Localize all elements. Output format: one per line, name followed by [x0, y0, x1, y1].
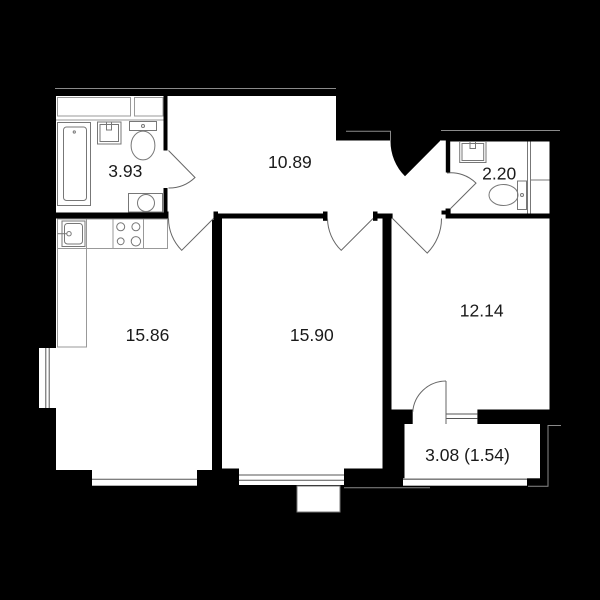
svg-text:3.93: 3.93: [108, 161, 142, 181]
svg-text:2.20: 2.20: [482, 164, 516, 184]
svg-text:10.89: 10.89: [268, 152, 312, 172]
svg-text:15.90: 15.90: [290, 325, 334, 345]
svg-text:15.86: 15.86: [126, 325, 170, 345]
svg-text:3.08 (1.54): 3.08 (1.54): [425, 445, 510, 465]
svg-text:12.14: 12.14: [460, 301, 504, 321]
